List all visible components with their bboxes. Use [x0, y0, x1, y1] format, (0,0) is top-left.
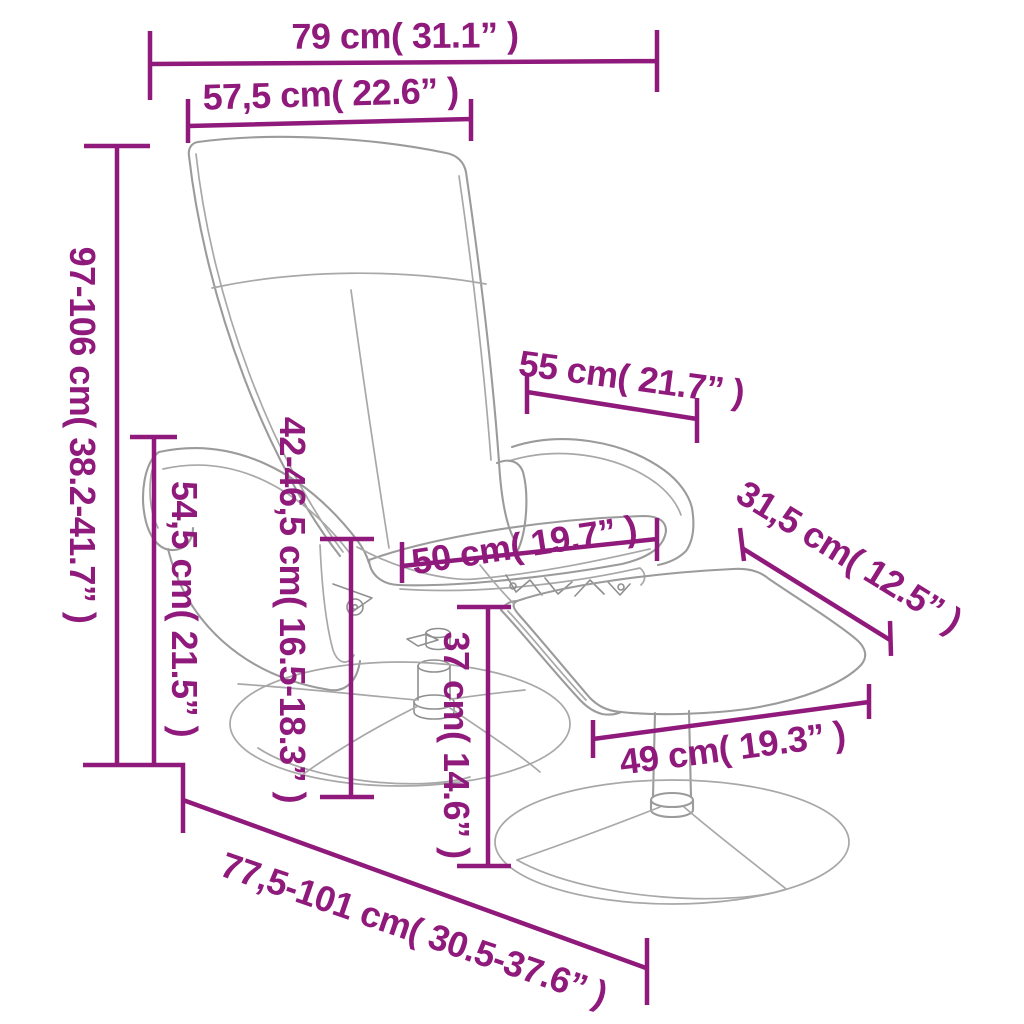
footstool-collar	[651, 793, 693, 807]
label-total-height: 97-106 cm( 38.2-41.7” )	[62, 247, 103, 624]
label-back-width: 79 cm( 31.1” )	[291, 14, 518, 57]
backrest-outline	[189, 137, 514, 556]
label-total-depth: 77,5-101 cm( 30.5-37.6” )	[216, 844, 613, 1015]
footstool-base-leg-edge	[517, 860, 786, 899]
footstool-side-band	[501, 601, 621, 715]
dimension-labels: 79 cm( 31.1” ) 57,5 cm( 22.6” ) 97-106 c…	[62, 14, 969, 1014]
label-seat-height: 42-46,5 cm( 16.5-18.3” )	[272, 417, 313, 803]
footstool-piping	[508, 611, 586, 700]
mount-plate	[407, 634, 438, 646]
right-armrest-top	[512, 439, 692, 508]
footstool-base-outline	[495, 780, 849, 904]
diagram-canvas: 79 cm( 31.1” ) 57,5 cm( 22.6” ) 97-106 c…	[0, 0, 1024, 1024]
backrest-center-seam	[351, 290, 389, 548]
footstool-base-legs	[517, 807, 785, 888]
backrest-left-piping	[196, 154, 343, 552]
right-armrest-bottom	[658, 508, 693, 565]
label-seat-width: 50 cm( 19.7” )	[409, 507, 640, 582]
label-armrest-height: 54,5 cm( 21.5” )	[164, 481, 205, 737]
label-backrest-inner-width: 55 cm( 21.7” )	[516, 342, 747, 413]
label-footstool-height: 37 cm( 14.6” )	[436, 631, 477, 858]
ratchet-pin-right	[618, 584, 624, 590]
right-armrest-inner	[509, 454, 681, 515]
label-backrest-width: 57,5 cm( 22.6” )	[202, 69, 459, 117]
label-footstool-width: 49 cm( 19.3” )	[617, 713, 848, 783]
lever-pivot-dot	[353, 605, 358, 610]
product-dimension-diagram: 79 cm( 31.1” ) 57,5 cm( 22.6” ) 97-106 c…	[0, 0, 1024, 1024]
headrest-seam	[212, 273, 486, 288]
